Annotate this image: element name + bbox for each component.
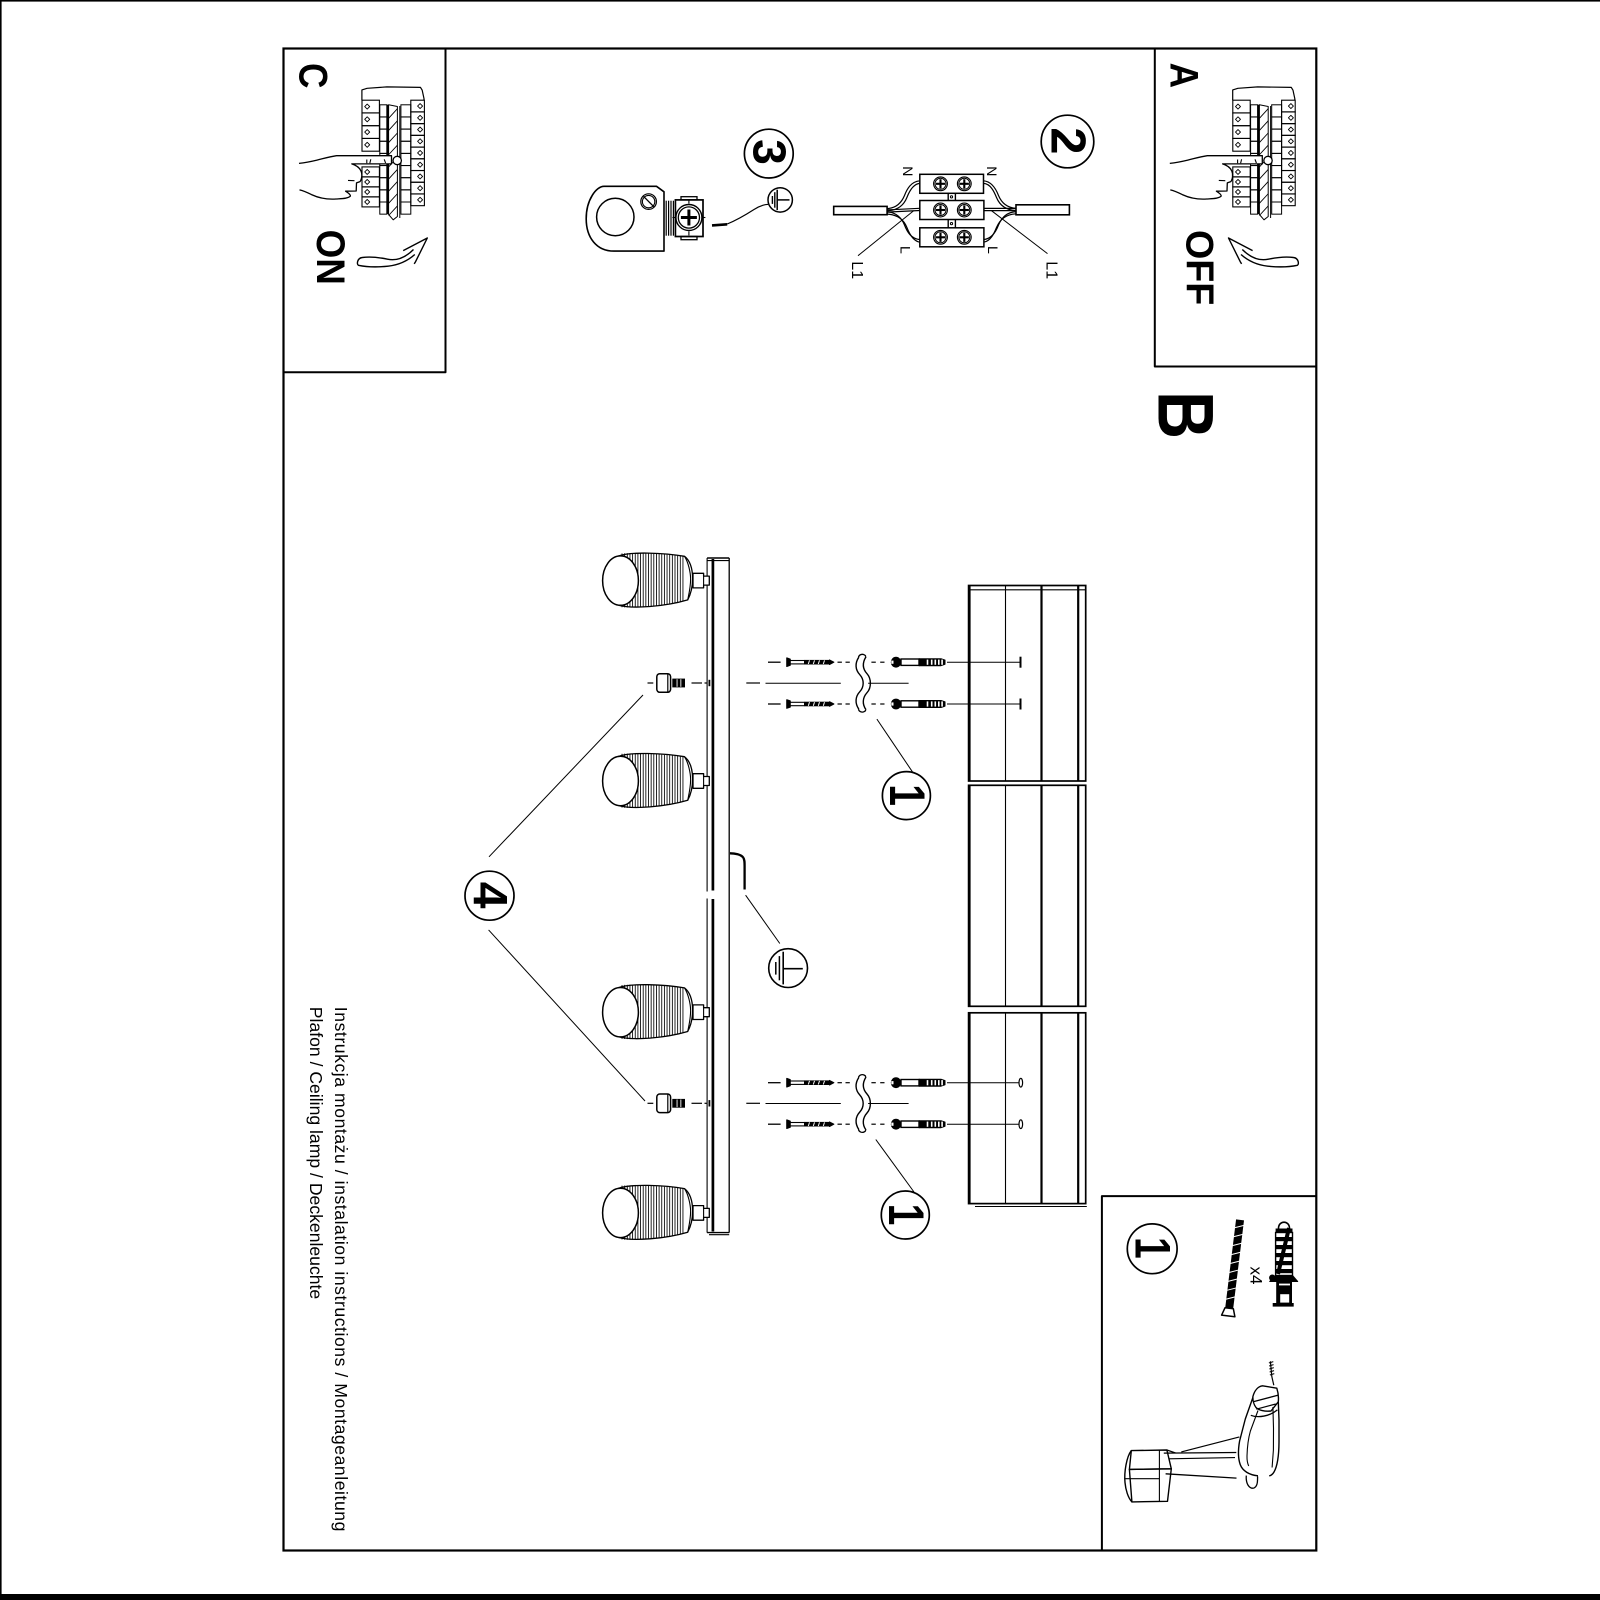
svg-text:L: L	[897, 246, 913, 254]
svg-text:1: 1	[879, 784, 936, 806]
svg-text:ON: ON	[307, 230, 352, 285]
svg-text:3: 3	[744, 139, 796, 165]
svg-text:x4: x4	[1246, 1267, 1265, 1285]
svg-text:N: N	[984, 166, 1000, 176]
svg-text:1: 1	[878, 1204, 935, 1226]
svg-text:Instrukcja montażu / instalati: Instrukcja montażu / instalation instruc…	[331, 1007, 351, 1532]
svg-text:1: 1	[1125, 1237, 1182, 1259]
svg-text:N: N	[900, 166, 916, 176]
svg-text:A: A	[1162, 63, 1207, 88]
svg-text:Plafon / Ceiling lamp / Decken: Plafon / Ceiling lamp / Deckenleuchte	[306, 1007, 326, 1299]
svg-text:B: B	[1141, 391, 1230, 439]
svg-text:L1: L1	[848, 261, 865, 279]
svg-text:L: L	[985, 246, 1001, 254]
svg-text:C: C	[291, 63, 336, 88]
svg-text:L1: L1	[1042, 261, 1059, 279]
svg-text:4: 4	[463, 882, 516, 909]
svg-text:2: 2	[1040, 127, 1094, 154]
svg-text:OFF: OFF	[1177, 230, 1221, 305]
